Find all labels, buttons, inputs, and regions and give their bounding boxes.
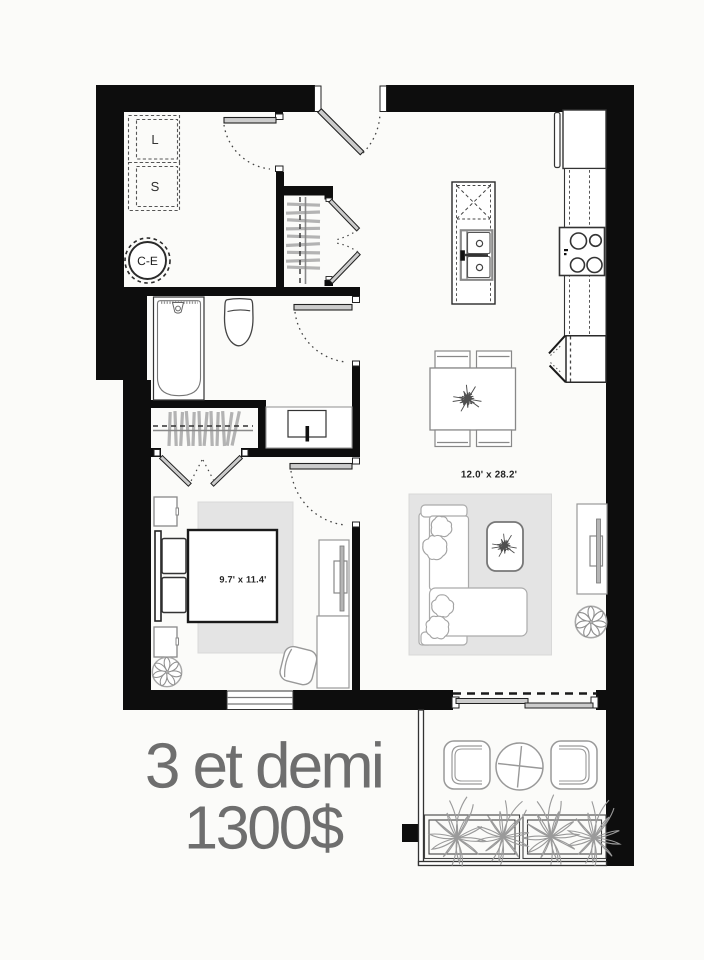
svg-text:12.0' x 28.2': 12.0' x 28.2'	[461, 470, 517, 481]
svg-text:3 et demi: 3 et demi	[145, 730, 382, 802]
svg-text:S: S	[151, 179, 160, 194]
svg-text:9.7' x 11.4': 9.7' x 11.4'	[219, 574, 266, 584]
svg-text:C-E: C-E	[137, 254, 158, 268]
svg-text:1300$: 1300$	[184, 794, 343, 862]
svg-text:L: L	[151, 132, 158, 147]
